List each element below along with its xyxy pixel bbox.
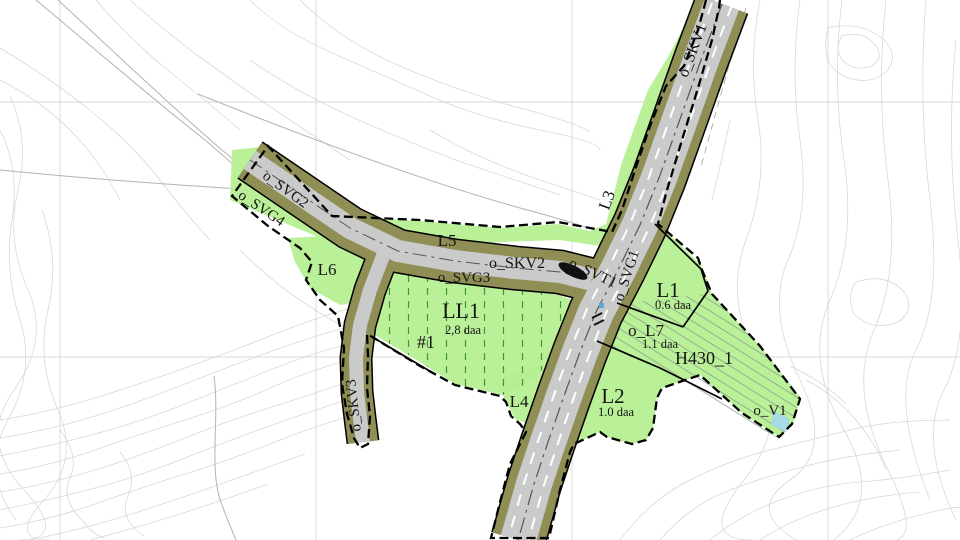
utility-point-marker bbox=[599, 303, 604, 308]
label-l6: L6 bbox=[318, 260, 337, 279]
label-ll1: LL1 bbox=[442, 298, 480, 323]
label-skv2: o_SKV2 bbox=[489, 255, 545, 272]
label-l4: L4 bbox=[510, 392, 529, 411]
plan-map: o_SKV1 o_SVG2 o_SVG4 L5 o_SKV2 o_SVT1 L3… bbox=[0, 0, 960, 540]
label-unit1: #1 bbox=[417, 332, 435, 352]
label-l5: L5 bbox=[438, 231, 457, 250]
label-h430: H430_1 bbox=[675, 348, 733, 368]
label-l2-area: 1.0 daa bbox=[598, 405, 635, 419]
label-v1: o_V1 bbox=[753, 403, 786, 419]
label-l1-area: 0.6 daa bbox=[655, 298, 692, 312]
label-svg3: o_SVG3 bbox=[438, 270, 491, 286]
label-ll1-area: 2,8 daa bbox=[445, 323, 482, 337]
label-l7-area: 1.1 daa bbox=[642, 337, 679, 351]
